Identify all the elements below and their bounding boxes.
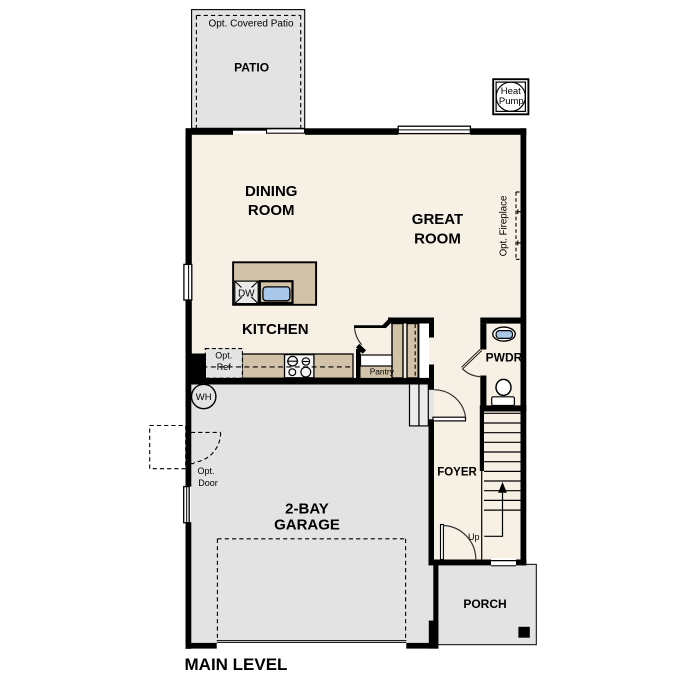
svg-text:Pantry: Pantry [370,366,395,376]
svg-text:Opt. Covered Patio: Opt. Covered Patio [208,18,293,29]
svg-text:ROOM: ROOM [248,202,295,219]
svg-text:Door: Door [198,478,218,488]
svg-text:MAIN LEVEL: MAIN LEVEL [185,655,288,674]
svg-text:Up: Up [468,532,480,542]
svg-text:PWDR: PWDR [486,351,523,365]
svg-text:DINING: DINING [245,183,298,200]
svg-text:Opt.: Opt. [197,466,214,476]
svg-text:FOYER: FOYER [437,467,477,479]
svg-text:KITCHEN: KITCHEN [242,321,309,338]
svg-text:PATIO: PATIO [234,61,269,75]
svg-text:2-BAY: 2-BAY [285,501,329,518]
svg-text:DW: DW [238,289,255,300]
svg-text:Opt. Fireplace: Opt. Fireplace [498,196,509,257]
svg-text:Opt.: Opt. [215,351,232,361]
svg-text:WH: WH [196,392,212,403]
svg-text:GARAGE: GARAGE [274,517,340,534]
svg-text:ROOM: ROOM [414,230,461,247]
svg-text:PORCH: PORCH [463,597,506,611]
svg-text:Pump: Pump [499,96,524,107]
svg-text:GREAT: GREAT [412,211,463,228]
